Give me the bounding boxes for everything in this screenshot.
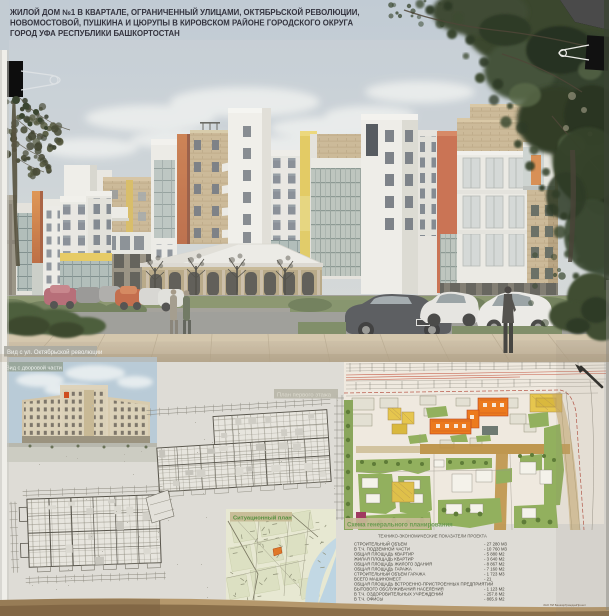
svg-text:План первого этажа: План первого этажа bbox=[277, 393, 332, 399]
svg-text:В Т.Ч. ОФИСЫ: В Т.Ч. ОФИСЫ bbox=[354, 597, 383, 602]
svg-text:- 865.9 М2: - 865.9 М2 bbox=[484, 597, 505, 602]
svg-text:Схема генерального планировани: Схема генерального планирования bbox=[347, 523, 453, 529]
svg-text:Вид с дворовой части: Вид с дворовой части bbox=[6, 365, 62, 372]
svg-text:НОВОМОСТОВОЙ, ПУШКИНА И ЦЮРУПЫ: НОВОМОСТОВОЙ, ПУШКИНА И ЦЮРУПЫ В КИРОВСК… bbox=[10, 19, 353, 28]
svg-text:ЖИЛОЙ ДОМ №1 В КВАРТАЛЕ, ОГРАН: ЖИЛОЙ ДОМ №1 В КВАРТАЛЕ, ОГРАНИЧЕННЫЙ УЛ… bbox=[9, 8, 360, 17]
svg-text:ГОРОД УФА РЕСПУБЛИКИ БАШКОРТОС: ГОРОД УФА РЕСПУБЛИКИ БАШКОРТОСТАН bbox=[10, 29, 180, 38]
svg-text:ТЕХНИКО-ЭКОНОМИЧЕСКИЕ ПОКАЗАТЕ: ТЕХНИКО-ЭКОНОМИЧЕСКИЕ ПОКАЗАТЕЛИ ПРОЕКТА bbox=[378, 534, 487, 539]
svg-text:Ситуационный план: Ситуационный план bbox=[233, 515, 292, 522]
